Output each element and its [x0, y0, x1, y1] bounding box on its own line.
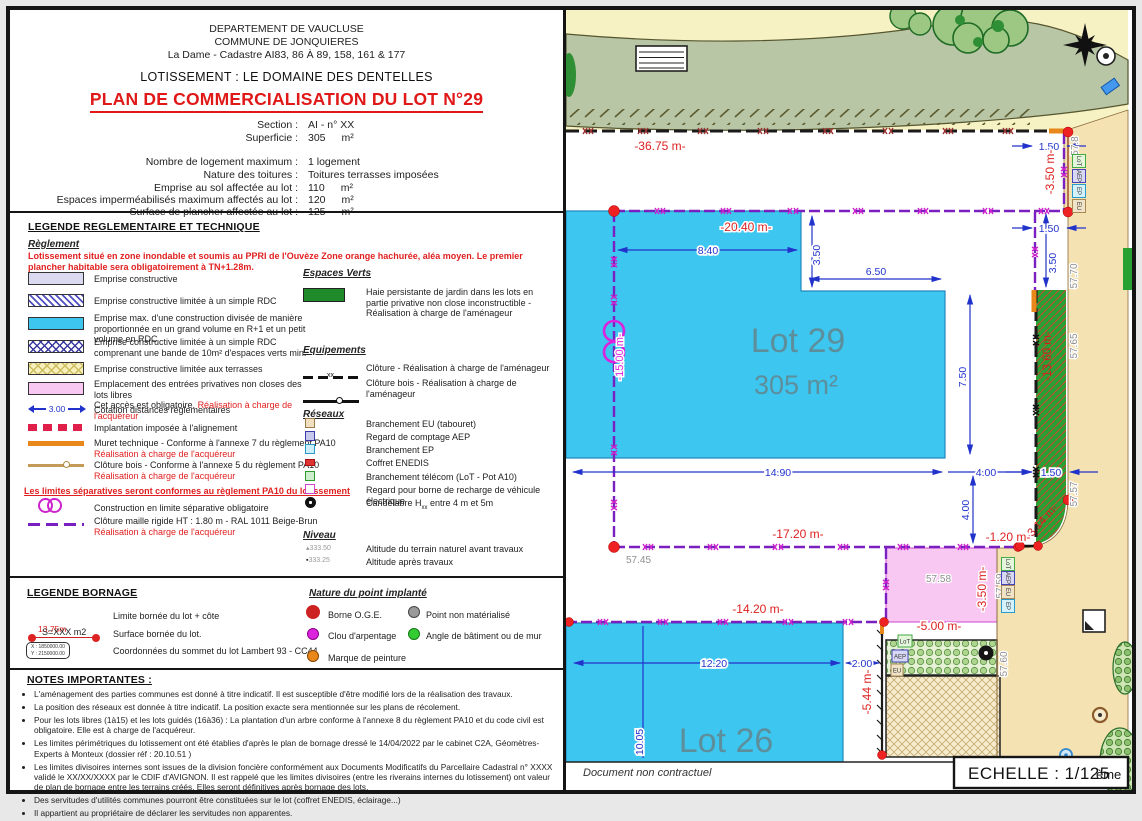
lotissement-line: LOTISSEMENT : LE DOMAINE DES DENTELLES	[10, 70, 563, 84]
swatch-emprise-bande-verte	[28, 340, 84, 353]
cloture-label: Clôture - Réalisation à charge de l'amén…	[366, 363, 556, 374]
scale-suffix: ème	[1096, 767, 1121, 782]
dim-label: -14.20 m-	[732, 602, 783, 616]
regard-square-icon	[1083, 610, 1105, 632]
scale-label: ECHELLE : 1/125	[968, 764, 1110, 783]
coords-chip: X : 1850000.00 Y : 2150000.00	[26, 642, 70, 659]
field-value: 305	[308, 132, 326, 144]
circle-icon	[47, 498, 62, 513]
aep-icon	[305, 431, 315, 441]
bornage-label: Limite bornée du lot + côte	[113, 611, 293, 622]
legend-tech-title: LEGENDE REGLEMENTAIRE ET TECHNIQUE	[28, 221, 260, 233]
commune-line: COMMUNE DE JONQUIERES	[10, 36, 563, 48]
plan-sheet: DEPARTEMENT DE VAUCLUSE COMMUNE DE JONQU…	[6, 6, 1136, 794]
label-part: entre 4 m et 5m	[428, 498, 494, 508]
label-part: Candélabre H	[366, 498, 422, 508]
aep-branch-icon: AEP	[894, 655, 906, 661]
dim-label: 2.00	[852, 658, 873, 670]
nature-label: Marque de peinture	[328, 653, 438, 664]
legend-item-label: Emprise constructive	[94, 274, 304, 285]
flood-warning: Lotissement situé en zone inondable et s…	[28, 251, 548, 273]
field-unit: m²	[342, 132, 354, 144]
label-part: Clôture bois - Conforme à l'annexe 5 du …	[94, 460, 319, 470]
altitude-label: 57.60	[999, 651, 1010, 676]
field-label: Nombre de logement maximum :	[10, 156, 308, 168]
roadside-hatch	[566, 109, 1030, 125]
field-value: 1 logement	[308, 156, 360, 168]
aep-branch-icon: AEP	[1004, 572, 1010, 584]
field-value: 110	[308, 182, 325, 194]
plan-svg: -36.75 m- -20.40 m- 8.40 3.50 6.50 Lot 2…	[566, 10, 1132, 790]
lot-branch-icon: LoT	[1004, 559, 1010, 570]
legend-item-label: Emprise constructive limitée à un simple…	[94, 337, 308, 358]
altitude-label: 57.70	[1069, 263, 1080, 288]
dim-label: -3.50 m-	[975, 567, 989, 612]
borne-dot-icon	[28, 634, 36, 642]
swatch-emprise-constructive	[28, 272, 84, 285]
lot26-label: Lot 26	[679, 722, 774, 760]
altitude-label: 57.58	[926, 574, 951, 585]
telecom-icon	[305, 471, 315, 481]
dim-label: 8.40	[698, 245, 719, 257]
reseau-label: Regard de comptage AEP	[366, 432, 556, 443]
legend-bornage-title: LEGENDE BORNAGE	[27, 587, 137, 599]
divider	[10, 668, 563, 670]
dim-label: 4.00	[976, 467, 997, 479]
cadastre-line: La Dame - Cadastre AI83, 86 À 89, 158, 1…	[10, 49, 563, 61]
dim-label: -5.00 m-	[917, 619, 962, 633]
swatch-entrees-privatives	[28, 382, 84, 395]
swatch-cotation: 3.00	[24, 404, 90, 414]
legend-item-label: Implantation imposée à l'alignement	[94, 423, 308, 434]
note-item: Pour les lots libres (1à15) et les lots …	[34, 715, 558, 736]
equipements-title: Equipements	[303, 345, 366, 356]
dim-label: 14.90	[765, 467, 791, 479]
lot-branch-icon: LoT	[900, 640, 911, 646]
reseau-label: Coffret ENEDIS	[366, 458, 556, 469]
swatch-muret-technique	[28, 441, 84, 446]
dim-label: 10.05	[634, 729, 646, 755]
swatch-implantation	[28, 424, 84, 431]
nature-point-title: Nature du point implanté	[309, 588, 427, 599]
swatch-cloture-bois	[28, 464, 84, 467]
swatch-cloture-bois-amenageur	[303, 400, 359, 403]
field-impermeabilises: Espaces imperméabilisés maximum affectés…	[10, 194, 563, 206]
niveau-apres-mark: ▪333.25	[306, 557, 330, 564]
field-label: Emprise au sol affectée au lot :	[10, 182, 308, 194]
lot29-label: Lot 29	[751, 322, 846, 360]
field-label: Nature des toitures :	[10, 169, 308, 181]
note-item: Les limites périmétriques du lotissement…	[34, 738, 558, 759]
dim-line	[34, 408, 46, 410]
swatch-cloture-maille	[28, 523, 84, 526]
swatch-emprise-rdc	[28, 294, 84, 307]
note-item: Des servitudes d'utilités communes pourr…	[34, 795, 558, 805]
cloture-bois-label: Clôture bois - Réalisation à charge de l…	[366, 378, 556, 399]
legend-item-label: Cotation distances réglementaires	[94, 405, 308, 416]
field-logements: Nombre de logement maximum : 1 logement	[10, 156, 563, 168]
utility-stack-entree: LoT AEP EU EP	[1002, 558, 1015, 613]
field-label: Superficie :	[10, 132, 308, 144]
dim-label: 7.50	[957, 367, 969, 388]
dim-label: -5.44 m-	[860, 670, 874, 715]
field-unit: m²	[342, 194, 354, 206]
label-part: Muret technique - Conforme à l'annexe 7 …	[94, 438, 336, 448]
eu-icon	[305, 418, 315, 428]
angle-batiment-icon	[408, 628, 420, 640]
coord-x: X : 1850000.00	[31, 644, 65, 650]
divider	[10, 576, 563, 578]
dim-label: -1.20 m-	[986, 530, 1031, 544]
note-item: La position des réseaux est donnée à tit…	[34, 702, 558, 712]
survey-point-icon	[1097, 47, 1115, 65]
xx-mark: xx	[327, 372, 334, 379]
legend-item-label: Emprise constructive limitée aux terrass…	[94, 364, 308, 375]
arrow-right-icon	[80, 405, 90, 413]
label-red-part: Réalisation à charge de l'acquéreur	[94, 471, 235, 481]
label-red-part: Réalisation à charge de l'acquéreur	[94, 449, 235, 459]
drain-grate-icon	[636, 46, 687, 71]
aep-branch-icon: AEP	[1075, 170, 1081, 182]
note-item: L'aménagement des parties communes est d…	[34, 689, 558, 699]
divider	[10, 211, 563, 213]
marque-peinture-map-icon	[1093, 708, 1107, 722]
legend-item-label: Construction en limite séparative obliga…	[94, 503, 308, 514]
dim-label: -36.75 m-	[634, 139, 685, 153]
niveau-avant-label: Altitude du terrain naturel avant travau…	[366, 544, 556, 555]
field-value: AI - n° XX	[308, 119, 354, 131]
ep-branch-icon: EP	[1004, 602, 1010, 610]
dim-label: -13.60 m-	[1042, 331, 1054, 380]
nature-label: Point non matérialisé	[426, 610, 556, 621]
enedis-icon	[305, 459, 315, 466]
dim-line	[68, 408, 80, 410]
lot-branch-icon: LoT	[1075, 156, 1081, 167]
nature-label: Borne O.G.E.	[328, 610, 408, 621]
haie-strip-across-street	[1123, 248, 1132, 290]
post-circle-icon	[336, 397, 343, 404]
swatch-haie	[303, 288, 345, 302]
dim-label: -17.20 m-	[772, 527, 823, 541]
page-title: PLAN DE COMMERCIALISATION DU LOT N°29	[90, 89, 483, 113]
label-part: Clôture maille rigide HT : 1.80 m - RAL …	[94, 516, 317, 526]
nature-label: Clou d'arpentage	[328, 631, 418, 642]
surface-mark: S=XXX m2	[42, 627, 86, 638]
plan-title-wrap: PLAN DE COMMERCIALISATION DU LOT N°29	[10, 89, 563, 113]
department-line: DEPARTEMENT DE VAUCLUSE	[10, 23, 563, 35]
dim-label: 3.50	[811, 245, 823, 266]
label-red-part: Réalisation à charge de l'acquéreur	[94, 527, 235, 537]
niveau-title: Niveau	[303, 530, 336, 541]
dim-label: 12.20	[701, 658, 727, 670]
dim-label: -3.50 m-	[1043, 150, 1057, 195]
legend-item-label: Emprise constructive limitée à un simple…	[94, 296, 304, 307]
notes-block: L'aménagement des parties communes est d…	[10, 686, 558, 821]
altitude-label: 57.45	[626, 555, 651, 566]
reseau-label: Branchement EP	[366, 445, 556, 456]
swatch-terrasses	[28, 362, 84, 375]
field-section: Section : AI - n° XX	[10, 119, 563, 131]
dim-label: -15.00 m-	[614, 333, 626, 380]
candelabre-map-icon	[979, 646, 994, 661]
dim-label: 6.50	[866, 266, 887, 278]
borne-oge-icon	[306, 605, 320, 619]
altitude-label: 57.8	[1070, 136, 1081, 156]
recharge-icon	[305, 484, 315, 494]
eu-branch-icon: EU	[1075, 202, 1081, 210]
left-panel: DEPARTEMENT DE VAUCLUSE COMMUNE DE JONQU…	[10, 10, 566, 790]
haie-label: Haie persistante de jardin dans les lots…	[366, 287, 551, 319]
swatch-emprise-max	[28, 317, 84, 330]
field-label: Section :	[10, 119, 308, 131]
nature-label: Angle de bâtiment ou de mur	[426, 631, 566, 642]
marque-peinture-icon	[307, 650, 319, 662]
reseau-label: Branchement EU (tabouret)	[366, 419, 556, 430]
dim-label: 1.50	[1039, 223, 1060, 235]
swatch-cloture-amenageur: xx	[303, 376, 359, 379]
dim-label: 4.00	[960, 500, 972, 521]
field-toitures: Nature des toitures : Toitures terrasses…	[10, 169, 563, 181]
altitude-label: 57.57	[1069, 481, 1080, 506]
dim-label: 3.50	[1047, 253, 1059, 274]
disclaimer-note: Document non contractuel	[583, 767, 712, 779]
field-value: 120	[308, 194, 326, 206]
note-item: Il appartient au propriétaire de déclare…	[34, 808, 558, 818]
dim-label: 1.50	[1041, 467, 1062, 479]
field-emprise: Emprise au sol affectée au lot : 110 m²	[10, 182, 563, 194]
field-label: Espaces imperméabilisés maximum affectés…	[10, 194, 308, 206]
dim-label: -20.40 m-	[720, 220, 771, 234]
lot29-area-label: 305 m²	[754, 370, 838, 400]
label-part: Emplacement des entrées privatives non c…	[94, 379, 302, 400]
swatch-limite-separative	[38, 498, 62, 518]
borne-dot-icon	[92, 634, 100, 642]
bornage-label: Surface bornée du lot.	[113, 629, 293, 640]
ep-branch-icon: EP	[1075, 187, 1081, 195]
site-plan-map: -36.75 m- -20.40 m- 8.40 3.50 6.50 Lot 2…	[566, 10, 1132, 790]
field-unit: m²	[341, 182, 353, 194]
bornage-label: Coordonnées du sommet du lot Lambert 93 …	[113, 646, 363, 657]
ep-icon	[305, 444, 315, 454]
eu-branch-icon: EU	[1004, 588, 1010, 596]
reglement-title: Règlement	[28, 239, 79, 250]
altitude-value: 333.50	[310, 545, 331, 552]
note-item: Les limites divisoires internes sont iss…	[34, 762, 558, 793]
candelabre-label: Candélabre Hxx entre 4 m et 5m	[366, 498, 556, 512]
field-value: Toitures terrasses imposées	[308, 169, 439, 181]
scale-box: ECHELLE : 1/125 ème	[954, 757, 1128, 788]
driveway-crosshatch	[886, 676, 1000, 757]
eu-branch-icon: EU	[893, 669, 901, 675]
espaces-verts-title: Espaces Verts	[303, 268, 371, 279]
candelabre-icon	[305, 497, 316, 508]
niveau-avant-mark: ▴333.50	[306, 544, 331, 552]
altitude-value: 333.25	[308, 557, 329, 564]
reseau-label: Branchement télécom (LoT - Pot A10)	[366, 472, 556, 483]
point-non-materialise-icon	[408, 606, 420, 618]
coord-y: Y : 2150000.00	[31, 651, 65, 657]
notes-title: NOTES IMPORTANTES :	[27, 674, 152, 686]
clou-arpentage-icon	[307, 628, 319, 640]
field-superficie: Superficie : 305 m²	[10, 132, 563, 144]
niveau-apres-label: Altitude après travaux	[366, 557, 556, 568]
cotation-value: 3.00	[46, 404, 69, 414]
altitude-label: 57.65	[1069, 333, 1080, 358]
arrow-left-icon	[24, 405, 34, 413]
post-circle-icon	[63, 461, 70, 468]
